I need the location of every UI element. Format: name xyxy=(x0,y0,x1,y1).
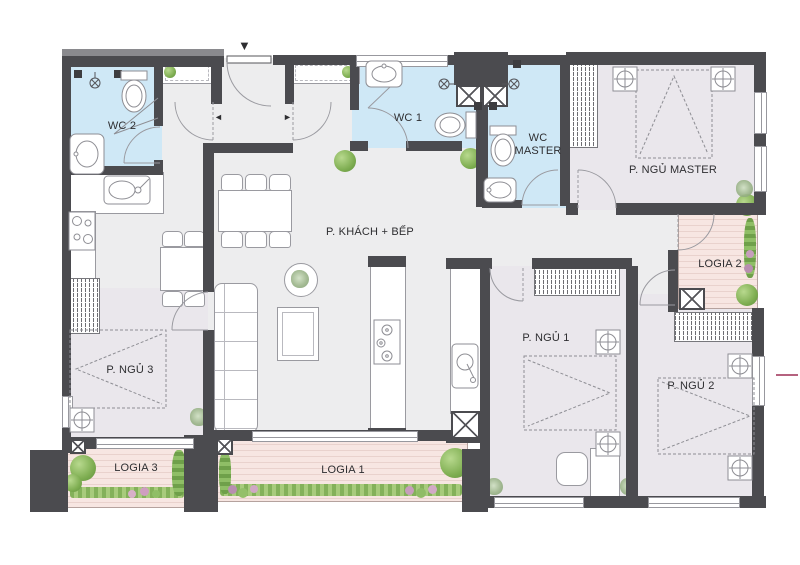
wall-left xyxy=(62,56,71,453)
wall-anchor xyxy=(376,62,384,70)
room-label-wc2: WC 2 xyxy=(92,120,152,133)
logia3-flower xyxy=(152,490,160,498)
logia3-flower xyxy=(128,490,136,498)
coffee-table xyxy=(277,307,319,361)
pillar xyxy=(30,450,68,512)
passage-right-arrow-icon: ► xyxy=(283,112,292,123)
logia1-flower xyxy=(416,488,426,498)
room-label-master-bedroom: P. NGỦ MASTER xyxy=(608,164,738,177)
logia1-flower xyxy=(250,485,258,493)
room-label-bedroom1: P. NGỦ 1 xyxy=(502,332,590,345)
shaft-box xyxy=(451,411,480,439)
nook-table xyxy=(160,247,206,291)
wall-anchor xyxy=(114,70,122,78)
wall-anchor xyxy=(74,70,82,78)
wardrobe-master xyxy=(568,64,598,148)
kitchen-counter-top xyxy=(66,172,164,214)
window xyxy=(96,438,194,449)
indoor-tree xyxy=(334,150,356,172)
shaft-box xyxy=(216,438,233,455)
entry-arrow-icon: ▼ xyxy=(238,40,251,51)
window xyxy=(648,497,740,508)
window xyxy=(62,396,73,428)
dining-chair xyxy=(245,174,267,191)
island-end-wall xyxy=(368,256,406,267)
accent-line xyxy=(776,374,798,376)
wall xyxy=(285,56,294,104)
nook-chair xyxy=(184,231,205,247)
corner-plant xyxy=(736,180,753,197)
wall-bedroom-divider xyxy=(626,266,638,506)
room-label-wc-master: WC MASTER xyxy=(510,132,566,158)
logia1-flower xyxy=(238,488,248,498)
passage-left-arrow-icon: ◄ xyxy=(214,112,223,123)
wall xyxy=(62,166,163,175)
logia3-grass-strip xyxy=(70,487,184,498)
counter-sink-run xyxy=(450,268,482,414)
wall xyxy=(350,141,368,151)
dining-chair xyxy=(221,231,243,248)
nook-chair xyxy=(184,291,205,307)
window xyxy=(754,92,767,134)
room-label-logia2: LOGIA 2 xyxy=(688,258,752,271)
wall xyxy=(406,141,462,151)
room-label-living-kitchen: P. KHÁCH + BẾP xyxy=(298,226,442,239)
window xyxy=(752,356,765,406)
logia1-flower xyxy=(228,485,237,494)
shaft-block xyxy=(454,52,508,85)
wardrobe-bedroom1 xyxy=(534,268,620,296)
wall xyxy=(566,52,766,65)
shaft-box xyxy=(679,288,705,310)
wardrobe-bedroom3 xyxy=(68,278,100,334)
shaft-box xyxy=(70,439,86,454)
wall xyxy=(560,56,570,206)
dining-chair xyxy=(269,231,291,248)
dining-chair xyxy=(269,174,291,191)
wardrobe-bedroom2 xyxy=(674,312,758,342)
wall xyxy=(566,203,578,215)
logia1-flower xyxy=(405,486,414,495)
wall xyxy=(482,200,522,208)
wall xyxy=(212,143,293,153)
wall-anchor xyxy=(513,60,521,68)
bedroom1-desk xyxy=(590,448,620,502)
room-label-bedroom3: P. NGỦ 3 xyxy=(86,364,174,377)
wall xyxy=(476,101,488,207)
wall xyxy=(62,56,224,67)
entry-plant xyxy=(164,66,176,78)
wall-right-bedroom2 xyxy=(752,308,764,508)
window xyxy=(494,497,584,508)
wall-anchor xyxy=(474,102,482,110)
coffee-table-plant xyxy=(291,270,309,288)
wall xyxy=(532,258,632,269)
sofa xyxy=(214,283,258,433)
wall-divider xyxy=(203,330,214,445)
kitchen-island xyxy=(370,265,406,433)
wc2-floor xyxy=(66,64,162,170)
logia1-flower xyxy=(428,485,437,494)
wall xyxy=(154,62,163,126)
room-label-logia1: LOGIA 1 xyxy=(298,464,388,477)
room-label-logia3: LOGIA 3 xyxy=(98,462,174,475)
dining-chair xyxy=(221,174,243,191)
wall-anchor xyxy=(489,102,497,110)
window xyxy=(252,431,418,442)
bedroom1-chair xyxy=(556,452,588,486)
wall xyxy=(211,56,222,104)
nook-chair xyxy=(162,231,183,247)
pillar xyxy=(462,449,488,512)
window xyxy=(754,146,767,192)
logia3-flower xyxy=(140,487,149,496)
dining-table xyxy=(218,190,292,232)
room-label-wc1: WC 1 xyxy=(378,112,438,125)
window xyxy=(356,55,448,67)
wall xyxy=(668,250,678,312)
nook-chair xyxy=(162,291,183,307)
logia2-bush xyxy=(736,284,758,306)
logia2-flower xyxy=(746,250,754,258)
floor-plan: ▼ ◄ ► WC 2 WC 1 WC MASTER P. NGỦ MASTER … xyxy=(0,0,800,565)
dining-chair xyxy=(245,231,267,248)
wall xyxy=(616,203,766,215)
room-label-bedroom2: P. NGỦ 2 xyxy=(646,380,736,393)
wall-divider xyxy=(203,143,214,292)
